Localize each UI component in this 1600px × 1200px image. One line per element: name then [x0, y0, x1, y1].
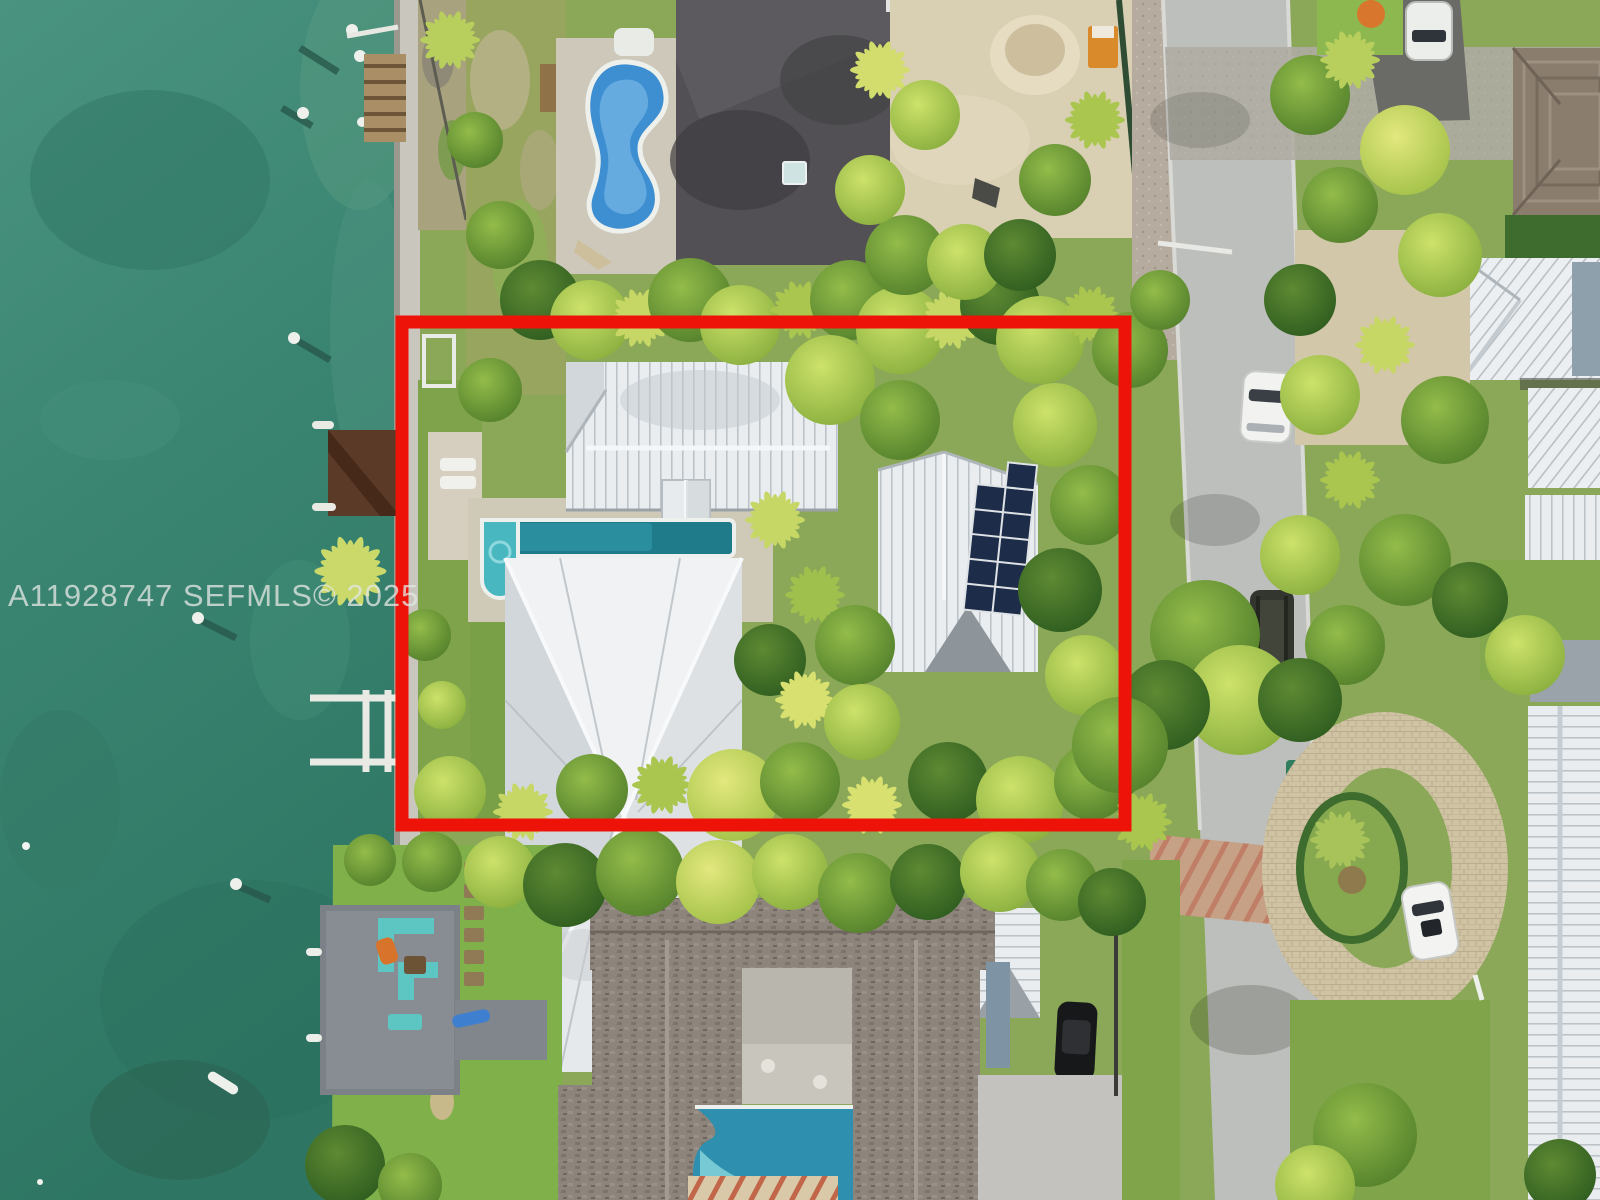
aerial-photo-canvas: A11928747 SEFMLS© 2025 [0, 0, 1600, 1200]
black-car [1054, 1001, 1098, 1081]
striped-patio [688, 1176, 838, 1200]
white-roof-house-c [1528, 640, 1600, 1200]
aerial-photo: A11928747 SEFMLS© 2025 [0, 0, 1600, 1200]
fire-table [404, 956, 426, 974]
hedge [1505, 215, 1600, 263]
flat-roof [742, 1044, 852, 1104]
white-roof-house-a [1462, 258, 1600, 380]
blue-accent-roof [986, 962, 1010, 1068]
white-roof-house-b [1528, 388, 1600, 488]
small-boat [614, 28, 654, 56]
mls-watermark: A11928747 SEFMLS© 2025 [8, 578, 419, 613]
lounge-chair [440, 458, 476, 471]
white-van [1406, 2, 1452, 60]
courtyard [742, 968, 852, 1054]
tile-roof-house [1513, 48, 1600, 215]
flowering-bush [1357, 0, 1385, 28]
concrete-driveway [978, 1075, 1122, 1200]
lounge-chair [440, 476, 476, 489]
skylight [783, 162, 806, 184]
subject-east-wing [878, 452, 1038, 672]
